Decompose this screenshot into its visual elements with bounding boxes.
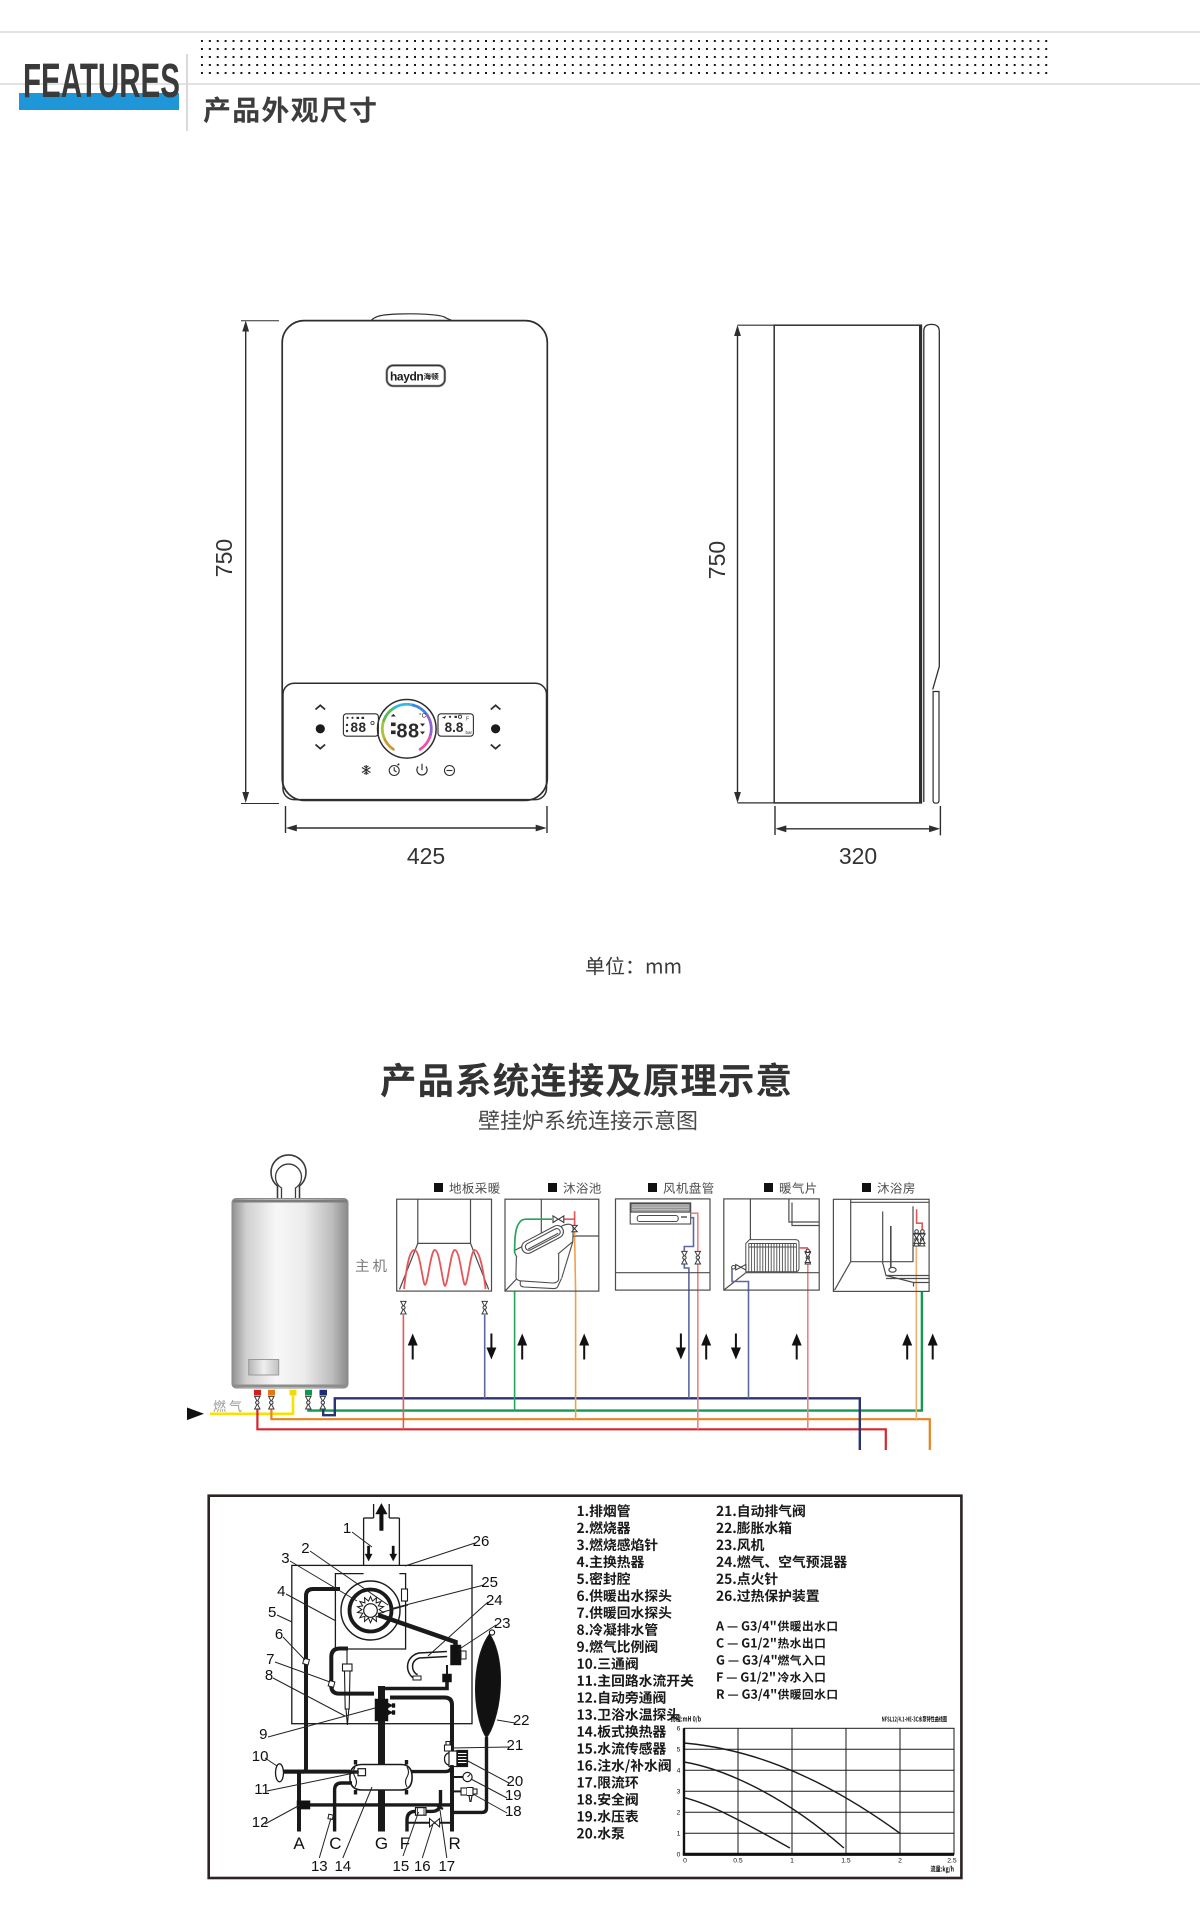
svg-text:11: 11 (254, 1781, 270, 1798)
svg-text:4: 4 (677, 1768, 681, 1775)
svg-text:G: G (375, 1834, 388, 1853)
svg-text:425: 425 (407, 843, 445, 869)
svg-text:750: 750 (704, 541, 730, 579)
svg-text:C: C (329, 1834, 341, 1853)
svg-text:750: 750 (211, 539, 237, 577)
svg-text:5: 5 (268, 1604, 276, 1621)
svg-text:2: 2 (677, 1810, 681, 1817)
svg-text:23: 23 (494, 1615, 511, 1632)
svg-text:1: 1 (790, 1858, 794, 1865)
svg-text:8: 8 (265, 1667, 273, 1684)
svg-text:88: 88 (396, 721, 419, 743)
svg-text:6: 6 (275, 1626, 283, 1643)
svg-text:0: 0 (683, 1858, 687, 1865)
svg-text:25: 25 (481, 1574, 498, 1591)
svg-text:R: R (449, 1834, 461, 1853)
svg-text:6: 6 (677, 1726, 681, 1733)
svg-text:10: 10 (252, 1748, 269, 1765)
svg-text:320: 320 (839, 843, 877, 869)
svg-text:13: 13 (311, 1858, 328, 1875)
svg-text:22: 22 (513, 1712, 530, 1729)
svg-text:26: 26 (473, 1533, 490, 1550)
svg-text:18: 18 (505, 1803, 522, 1820)
svg-text:2: 2 (301, 1540, 309, 1557)
svg-text:A: A (293, 1834, 305, 1853)
svg-text:5: 5 (677, 1747, 681, 1754)
svg-text:16: 16 (414, 1858, 431, 1875)
svg-text:21: 21 (507, 1737, 524, 1754)
svg-text:2: 2 (898, 1858, 902, 1865)
svg-text:1.5: 1.5 (841, 1858, 851, 1865)
svg-text:15: 15 (393, 1858, 410, 1875)
svg-text:F: F (400, 1834, 410, 1853)
svg-text:0: 0 (677, 1852, 681, 1859)
svg-text:7: 7 (266, 1651, 274, 1668)
svg-text:haydn: haydn (390, 369, 423, 383)
svg-text:8.8: 8.8 (445, 720, 464, 735)
svg-text:88: 88 (350, 720, 366, 735)
svg-text:3: 3 (281, 1550, 289, 1567)
svg-text:°C: °C (419, 712, 427, 720)
svg-text:24: 24 (486, 1592, 503, 1609)
svg-text:12: 12 (252, 1814, 269, 1831)
svg-text:3: 3 (677, 1789, 681, 1796)
svg-text:F: F (466, 717, 469, 723)
svg-text:2.5: 2.5 (947, 1858, 957, 1865)
svg-text:bar: bar (466, 730, 473, 735)
svg-text:14: 14 (334, 1858, 351, 1875)
svg-text:17: 17 (438, 1858, 455, 1875)
svg-text:1: 1 (343, 1520, 351, 1537)
svg-text:4: 4 (277, 1583, 285, 1600)
svg-text:19: 19 (505, 1787, 522, 1804)
svg-text:9: 9 (259, 1726, 267, 1743)
svg-text:0.5: 0.5 (733, 1858, 743, 1865)
svg-text:1: 1 (677, 1831, 681, 1838)
